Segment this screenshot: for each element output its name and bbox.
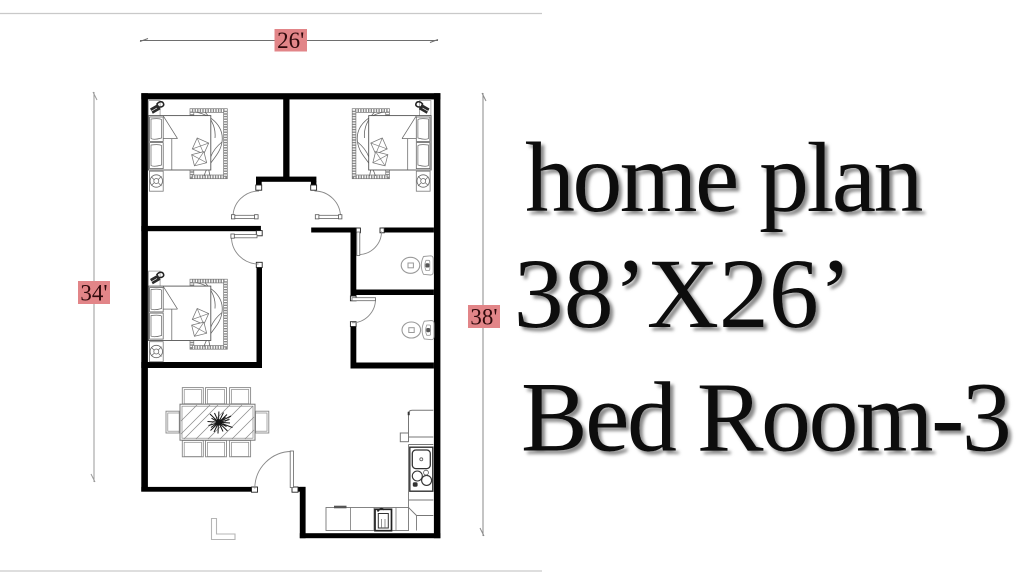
- svg-text:26': 26': [277, 28, 304, 53]
- svg-text:38': 38': [470, 305, 497, 330]
- svg-text:Bed Room-3: Bed Room-3: [521, 361, 1009, 472]
- svg-text:home plan: home plan: [525, 122, 923, 233]
- svg-text:38’X26’: 38’X26’: [514, 238, 852, 349]
- svg-text:34': 34': [80, 281, 107, 306]
